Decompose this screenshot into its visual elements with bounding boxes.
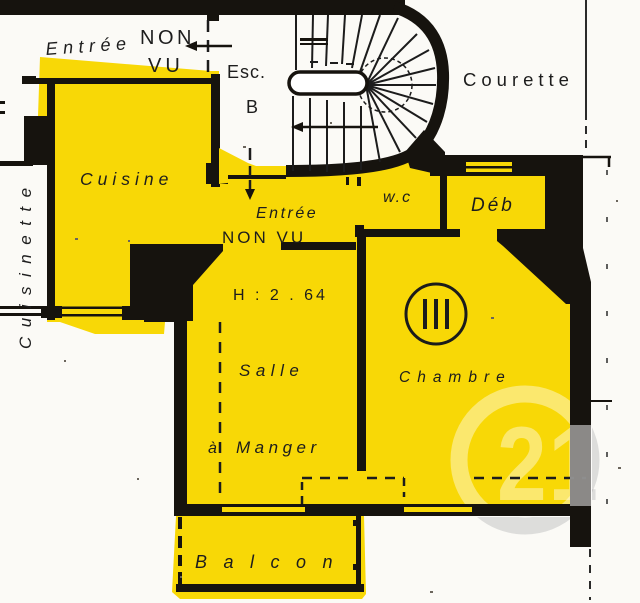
svg-text:Déb: Déb [471, 195, 515, 216]
svg-text:Balcon: Balcon [195, 552, 349, 572]
svg-text:B: B [246, 97, 258, 117]
svg-text:Courette: Courette [463, 69, 574, 90]
svg-text:Chambre: Chambre [399, 369, 512, 386]
svg-text:Esc.: Esc. [227, 62, 266, 82]
svg-text:VU: VU [148, 55, 184, 77]
svg-text:w.c: w.c [383, 189, 412, 206]
svg-text:Cuisine: Cuisine [80, 169, 173, 189]
svg-text:Salle: Salle [239, 361, 304, 380]
svg-text:Manger: Manger [236, 438, 321, 457]
svg-text:NON VU: NON VU [222, 228, 306, 247]
svg-text:à: à [208, 440, 217, 457]
svg-text:Cuisinette: Cuisinette [16, 178, 35, 349]
svg-text:Entrée: Entrée [256, 205, 318, 222]
svg-text:H : 2 . 64: H : 2 . 64 [233, 287, 328, 304]
svg-text:NON: NON [140, 27, 195, 49]
